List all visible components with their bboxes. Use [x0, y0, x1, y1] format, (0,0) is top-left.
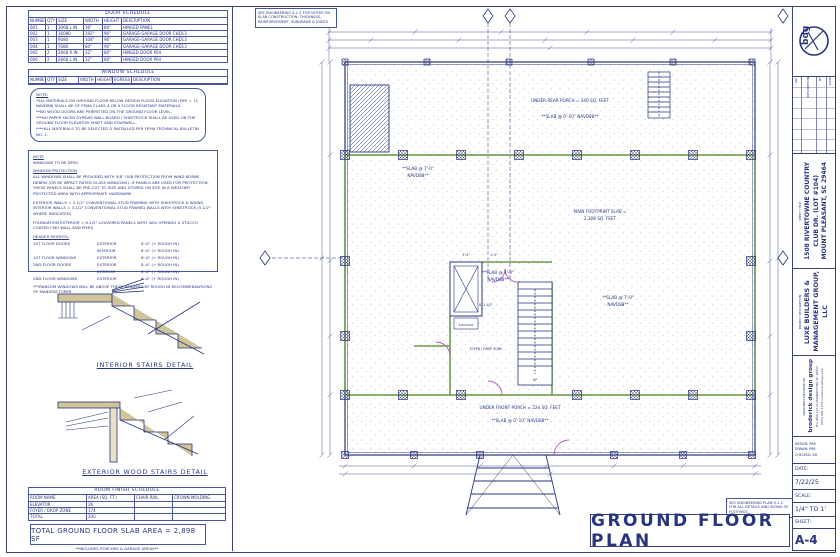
annotation-slab-center-1: **SLAB @ 7'-0": [482, 270, 514, 275]
floor-plan: UNDER REAR PORCH = 340 SQ. FEET **SLAB @…: [234, 6, 790, 551]
address-line-3: MOUNT PLEASANT, SC 29464: [821, 162, 829, 259]
sheet-number-value: A-4: [793, 531, 835, 549]
window-schedule-title: WINDOW SCHEDULE: [29, 70, 228, 77]
annotation-main-2: 2,308 SQ. FEET: [584, 216, 617, 221]
revision-col-description: DESCRIPTION: [807, 77, 811, 97]
cell: 32": [84, 56, 103, 62]
date-label: DATE:: [793, 466, 835, 473]
credits-section: DESIGN: PRB DRAWN: PRB CHECKED: BD: [793, 437, 835, 463]
door-schedule-title: DOOR SCHEDULE: [29, 11, 228, 18]
elevator-shaft: [450, 262, 482, 329]
dim-label: 8'-1 1/2": [479, 303, 493, 307]
checked-credit: CHECKED: BD: [795, 453, 817, 458]
flood-note-line: ****ALL MATERIALS TO BE SELECTED & INSTA…: [36, 126, 200, 137]
revision-col-date: DATE: [829, 77, 833, 85]
cell: [46, 83, 57, 84]
foundation-line: FOUNDATION EXTERIOR = 8-1/2" LOUVERED PA…: [33, 220, 213, 231]
interior-stairs-detail-drawing: [52, 276, 222, 358]
address-line-1: 1508 RIVERTOWNE COUNTRY: [804, 162, 812, 260]
cell: [29, 83, 46, 84]
header-height-row: 1ST FLOOR WINDOWSEXTERIOR8'-0" (+ ROUGH …: [33, 254, 213, 261]
annotation-slab-left-1: **SLAB @ 7'-0": [402, 166, 434, 171]
annotation-slab-center-2: NAVD88**: [487, 277, 508, 282]
title-block: bdg NO. DESCRIPTION BY DATE SHEET TITLE:…: [792, 6, 836, 551]
header-height-row: INTERIOR8'-0" (+ ROUGH IN): [33, 247, 213, 254]
window-protection-paragraph: ALL WINDOWS SHALL BE PROVIDED WITH 5/8" …: [33, 174, 213, 197]
annotation-front-porch: UNDER FRONT PORCH = 224 SQ. FEET: [480, 405, 561, 410]
project-line-1: LUXE BUILDERS &: [803, 280, 811, 344]
scale-label: SCALE:: [793, 493, 835, 500]
header-cell: QTY: [46, 18, 57, 24]
garage-hatched-area: [350, 85, 389, 152]
cell: [57, 83, 79, 84]
table-row: [29, 83, 228, 84]
dim-label: 2'-0": [490, 253, 498, 257]
project-label: PROJECT DESCRIPTION:: [799, 294, 803, 329]
project-line-3: LLC: [821, 305, 829, 318]
drawing-sheet: DOOR SCHEDULE NUMBERQTYSIZEWIDTHHEIGHTDE…: [0, 0, 840, 557]
annotation-main-1: MAIN FOOTPRINT SLAB =: [573, 209, 627, 214]
cell: [96, 83, 113, 84]
annotation-elevator: ELEVATOR: [459, 323, 473, 327]
header-cell: HEIGHT: [96, 77, 113, 83]
flood-note-line: *ALL MATERIALS ON GROUND FLOOR BELOW DES…: [36, 98, 200, 109]
construction-note: NOTE WINDOWS TO BE DP50 WINDOW PROTECTIO…: [28, 150, 218, 272]
header-cell: HEIGHT: [103, 18, 122, 24]
cell: [113, 83, 132, 84]
sheet-title-ground-floor-plan: GROUND FLOOR PLAN: [590, 514, 790, 547]
window-schedule-title-row: WINDOW SCHEDULE: [29, 70, 228, 77]
header-height-row: 2ND FLOOR DOORSEXTERIOR8'-0" (+ ROUGH IN…: [33, 261, 213, 268]
total-slab-area-box: TOTAL GROUND FLOOR SLAB AREA = 2,898 SF: [30, 524, 206, 545]
project-line-2: MANAGEMENT GROUP,: [812, 271, 820, 352]
revision-col-no: NO.: [795, 77, 799, 82]
room-finish-title: ROOM FINISH SCHEDULE: [29, 488, 226, 495]
sheet-title-section: SHEET TITLE: 1508 RIVERTOWNE COUNTRY CLU…: [793, 154, 835, 269]
cell: TOTAL: [29, 514, 87, 520]
exterior-stairs-detail-label: EXTERIOR WOOD STAIRS DETAIL: [62, 468, 228, 476]
project-description-section: PROJECT DESCRIPTION: LUXE BUILDERS & MAN…: [793, 269, 835, 356]
sheet-title-label: SHEET TITLE:: [799, 201, 803, 221]
table-row: TOTAL200: [29, 514, 226, 520]
svg-text:bdg: bdg: [801, 26, 811, 45]
left-column-divider: [232, 6, 233, 551]
flood-note-line: ***NO PAPER FACED GYPSUM WALL BOARD / SH…: [36, 115, 200, 126]
cell: [79, 83, 96, 84]
cell: [173, 514, 226, 520]
provided-by-section: DRAWINGS PROVIDED BY: broderick design g…: [793, 356, 835, 437]
interior-stairs-detail-label: INTERIOR STAIRS DETAIL: [70, 361, 220, 369]
slab-construction-note: SEE ENGINEERING S-1.2 FOR NOTES ON SLAB …: [255, 8, 337, 28]
annotation-foyer: FOYER / DROP ZONE: [470, 347, 503, 351]
header-cell: NUMBER: [29, 77, 46, 83]
logo-section: bdg: [793, 7, 835, 77]
room-finish-schedule: ROOM FINISH SCHEDULE ROOM NAMEAREA (SQ. …: [28, 487, 226, 521]
annotation-slab-right-2: NAVD88**: [607, 302, 628, 307]
cell: HINGED DOOR P04: [122, 56, 228, 62]
annotation-slab-left-2: NAVD88**: [407, 173, 428, 178]
dim-label: 3'-4": [462, 253, 470, 257]
cell: 200: [87, 514, 135, 520]
annotation-up: UP: [533, 378, 537, 382]
sheet-title-text: GROUND FLOOR PLAN: [591, 511, 789, 551]
total-slab-note: **INCLUDES PORCHES & GARAGE AREAS**: [30, 546, 204, 551]
interior-wall-line: INTERIOR WALLS = 3-1/2" CONVENTIONAL STU…: [33, 205, 213, 216]
scale-value: 1/4" TO 1': [793, 504, 835, 515]
cell: 80": [103, 56, 122, 62]
sheet-number-label: SHEET:: [793, 519, 835, 526]
firm-contact-2: (843) 991-1237 broderick-design.com: [821, 368, 825, 425]
flood-note: NOTE: *ALL MATERIALS ON GROUND FLOOR BEL…: [30, 88, 206, 142]
exterior-stairs-detail-drawing: [52, 382, 222, 468]
total-slab-area-text: TOTAL GROUND FLOOR SLAB AREA = 2,898 SF: [31, 527, 205, 543]
cell: 2668 L IN: [57, 56, 84, 62]
revision-col-by: BY: [819, 77, 823, 81]
header-height-row: 1ST FLOOR DOORSEXTERIOR8'-0" (+ ROUGH IN…: [33, 240, 213, 247]
header-height-row: INTERIOR8'-0" (+ ROUGH IN): [33, 268, 213, 275]
revision-table: NO. DESCRIPTION BY DATE: [793, 77, 835, 154]
cell: 006: [29, 56, 46, 62]
cell: [132, 83, 228, 84]
header-cell: QTY: [46, 77, 57, 83]
room-finish-title-row: ROOM FINISH SCHEDULE: [29, 488, 226, 495]
header-cell: EGRESS: [113, 77, 132, 83]
interior-stair-run: [518, 282, 552, 385]
address-line-2: CLUB DR. (LOT #104): [813, 175, 821, 247]
door-schedule-title-row: DOOR SCHEDULE: [29, 11, 228, 18]
header-cell: NUMBER: [29, 18, 46, 24]
provided-by-label: DRAWINGS PROVIDED BY:: [803, 377, 807, 415]
annotation-slab-rear: **SLAB @ 0'-10" NAVD88**: [541, 114, 598, 119]
header-cell: WIDTH: [79, 77, 96, 83]
door-schedule: DOOR SCHEDULE NUMBERQTYSIZEWIDTHHEIGHTDE…: [28, 10, 228, 63]
annotation-rear-porch: UNDER REAR PORCH = 340 SQ. FEET: [531, 98, 609, 103]
annotation-slab-right-1: **SLAB @ 7'-0": [602, 295, 634, 300]
table-row: 00622668 L IN32"80"HINGED DOOR P04: [29, 56, 228, 62]
front-porch-steps: [466, 455, 560, 515]
cell: [135, 514, 173, 520]
window-schedule: WINDOW SCHEDULE NUMBERQTYSIZEWIDTHHEIGHT…: [28, 69, 228, 85]
cell: 2: [46, 56, 57, 62]
bdg-logo-icon: bdg: [796, 23, 832, 59]
date-value: 7/22/25: [793, 477, 835, 488]
annotation-slab-front: **SLAB @ 0'-10" NAVD88**: [491, 418, 548, 423]
